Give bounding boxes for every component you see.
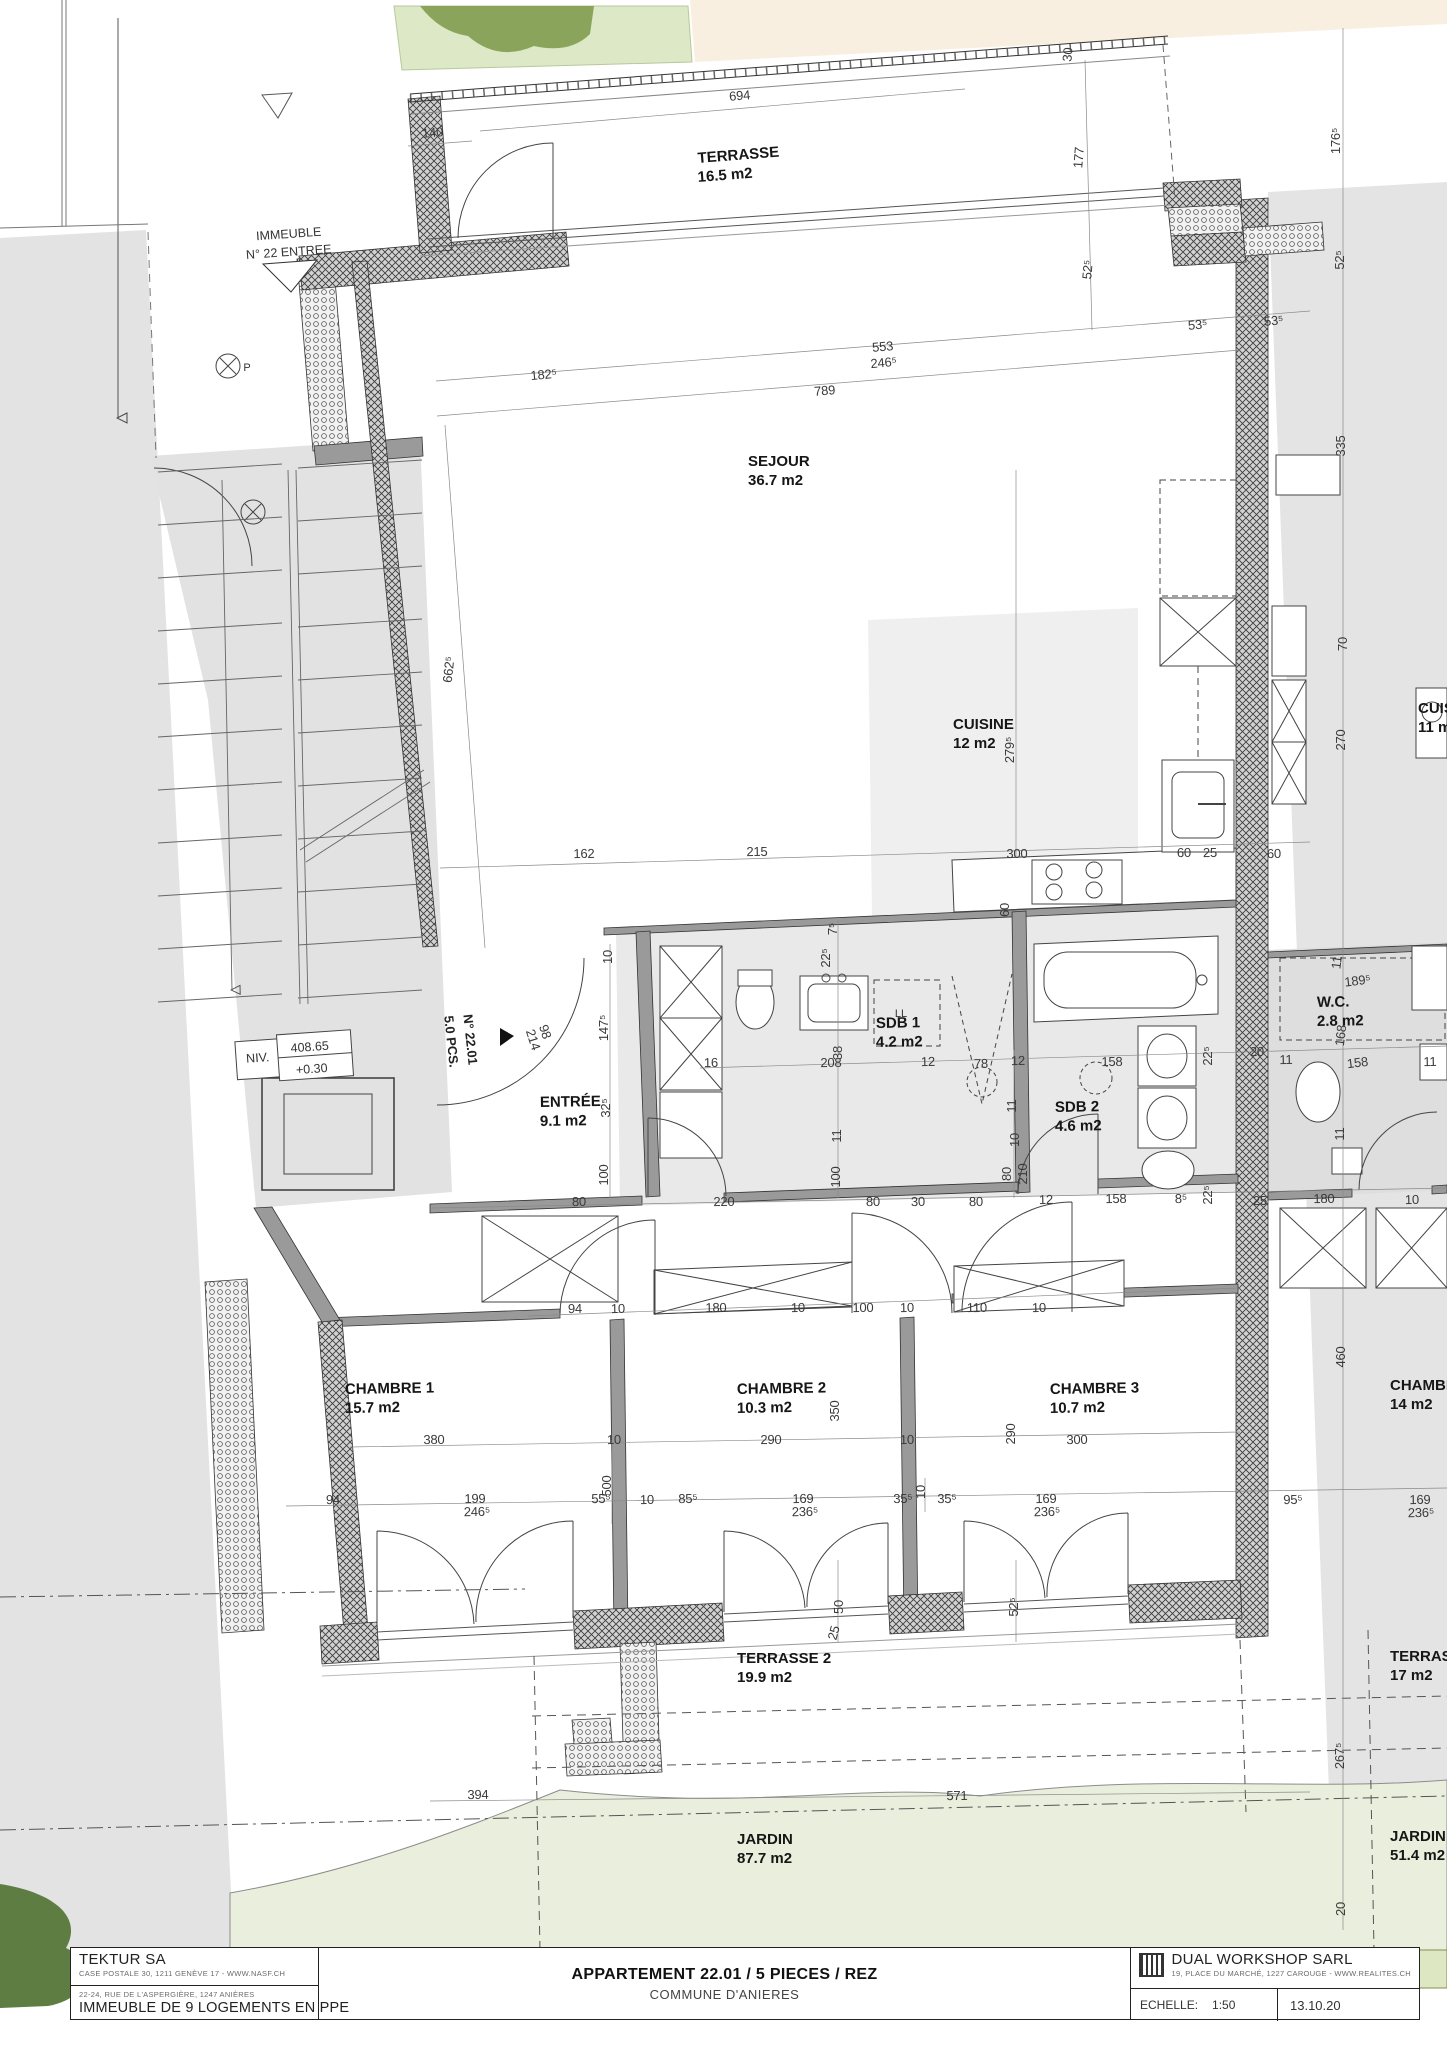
office-name: DUAL WORKSHOP SARL — [1171, 1951, 1411, 1968]
room-label: 16.5 m2 — [697, 165, 753, 186]
toilet — [1142, 1151, 1194, 1189]
dimension-label: 147⁵ — [596, 1015, 611, 1041]
interior-wall — [322, 1309, 560, 1327]
room-label: SEJOUR — [748, 453, 810, 470]
dimension-label: 571 — [946, 1788, 967, 1803]
garden-wall — [572, 1718, 612, 1744]
room-label: 2.8 m2 — [1317, 1012, 1364, 1030]
facade-pier — [320, 1622, 379, 1664]
room-label: TERRASSE 2 — [737, 1650, 831, 1667]
door-swing — [1047, 1513, 1128, 1597]
dimension-label: 22⁵ — [818, 948, 833, 967]
room-label: 19.9 m2 — [737, 1669, 792, 1686]
dimension-label: 694 — [728, 87, 750, 104]
dimension-label: 52⁵ — [1332, 250, 1347, 269]
dimension-label: 110 — [967, 1300, 987, 1315]
room-label: TERRASSE — [697, 144, 780, 167]
interior-wall — [900, 1317, 918, 1627]
plan-note: +0.30 — [295, 1061, 328, 1077]
dimension-label: 10 — [791, 1300, 805, 1315]
plan-note: N° 22.01 — [460, 1014, 480, 1066]
insulated-wall — [1168, 204, 1243, 236]
room-label: 36.7 m2 — [748, 472, 803, 489]
dimension-label: 180 — [1313, 1191, 1334, 1206]
scale-cell: ECHELLE: 1:50 — [1131, 1989, 1278, 2021]
toilet — [1296, 1062, 1340, 1122]
dimension-label: 100 — [828, 1166, 843, 1187]
dimension-label: 12 — [921, 1054, 935, 1069]
dimension-label: 215 — [746, 844, 767, 859]
dimension-label: 12 — [1039, 1192, 1053, 1207]
dimension-label: 80 — [969, 1194, 983, 1209]
door-swing — [458, 143, 553, 238]
project-address: 22-24, RUE DE L'ASPERGIÈRE, 1247 ANIÈRES — [79, 1990, 310, 1999]
dimension-label: 11 — [1279, 1052, 1292, 1067]
dimension-label: 7⁵ — [825, 923, 840, 935]
neighbor-wall — [1432, 1185, 1447, 1194]
dimension-label: 100 — [596, 1164, 611, 1185]
room-label: CHAMBRE 1 — [345, 1379, 434, 1398]
date-value: 13.10.20 — [1290, 1998, 1341, 2013]
dimension-label: 10 — [1405, 1192, 1419, 1207]
interior-wall — [610, 1319, 628, 1631]
plan-note: 408.65 — [290, 1039, 329, 1056]
dimension-label: 350 — [827, 1400, 842, 1421]
dimension-label: 8⁵ — [1175, 1191, 1187, 1206]
door-swing — [724, 1531, 805, 1612]
room-label: CHAMBRE — [1390, 1377, 1447, 1394]
garden-lawn — [230, 1780, 1447, 1950]
room-label: CUISINE — [1418, 700, 1447, 717]
door-swing — [437, 958, 584, 1105]
dimension-label: 60 — [1177, 845, 1191, 860]
dimension-label: 789 — [813, 382, 835, 399]
dimension-label: 279⁵ — [1002, 737, 1017, 763]
dimension-label: 236⁵ — [1034, 1504, 1061, 1519]
dimension-label: 158 — [1346, 1054, 1369, 1071]
scale-value: 1:50 — [1212, 1998, 1235, 2012]
dimension-label: 10 — [900, 1432, 914, 1447]
dimension-label: 22⁵ — [1200, 1185, 1215, 1204]
sheet-subtitle: COMMUNE D'ANIERES — [650, 1987, 800, 2002]
room-label: TERRASSE — [1390, 1648, 1447, 1665]
dimension-label: 78 — [974, 1056, 988, 1071]
room-label: CHAMBRE 2 — [737, 1379, 826, 1398]
dimension-label: 220 — [713, 1194, 734, 1209]
dimension-label: 10 — [607, 1432, 621, 1447]
dimension-label: 10 — [1007, 1133, 1022, 1147]
plan-background — [0, 0, 1447, 2008]
dimension-label: 10 — [640, 1492, 654, 1507]
dimension-label: 11 — [1332, 1127, 1347, 1140]
dimension-label: 25 — [1203, 845, 1217, 860]
floor-plan-sheet: 694140177176⁵3052⁵52⁵53⁵53⁵182⁵553246⁵78… — [0, 0, 1447, 2048]
dimension-label: 52⁵ — [1006, 1597, 1021, 1616]
dimension-label: 53⁵ — [1263, 312, 1283, 329]
dimension-label: 189⁵ — [1343, 971, 1371, 989]
dual-workshop-logo — [1139, 1953, 1164, 1977]
office-address: 19, PLACE DU MARCHÉ, 1227 CAROUGE - WWW.… — [1171, 1969, 1411, 1978]
dimension-label: 22⁵ — [1200, 1046, 1215, 1065]
scale-label: ECHELLE: — [1140, 1998, 1198, 2012]
dimension-label: 35⁵ — [937, 1491, 957, 1506]
plan-note: LL — [895, 1008, 907, 1020]
dimension-label: 60 — [997, 903, 1012, 917]
door-swing — [964, 1521, 1045, 1602]
room-label: SDB 2 — [1055, 1098, 1099, 1116]
dimension-label: 246⁵ — [464, 1504, 491, 1519]
dimension-label: 11 — [1328, 955, 1344, 970]
dimension-label: 60 — [1267, 846, 1281, 861]
interior-wall — [254, 1207, 340, 1322]
plan-note: P — [243, 362, 250, 374]
room-label: 51.4 m2 — [1390, 1847, 1445, 1864]
dimension-label: 11 — [1004, 1099, 1019, 1112]
dimension-label: 53⁵ — [1187, 316, 1207, 333]
dimension-label: 100 — [852, 1300, 873, 1315]
facade-pier — [1128, 1580, 1242, 1623]
door-swing — [852, 1213, 952, 1313]
dimension-label: 380 — [423, 1432, 444, 1447]
dimension-label: 270 — [1333, 729, 1348, 750]
dimension-label: 10 — [913, 1485, 928, 1499]
dimension-label: 30 — [911, 1194, 925, 1209]
dimension-label: 300 — [1006, 846, 1027, 861]
dimension-label: 25 — [825, 1624, 843, 1641]
dimension-label: 16 — [704, 1055, 718, 1070]
dimension-label: 158 — [1105, 1191, 1126, 1206]
title-block-sheet: APPARTEMENT 22.01 / 5 PIECES / REZ COMMU… — [319, 1948, 1131, 2019]
room-label: 15.7 m2 — [345, 1399, 400, 1417]
dimension-label: 335 — [1333, 435, 1348, 456]
dimension-label: 267⁵ — [1332, 1743, 1347, 1769]
plan-note: NIV. — [246, 1050, 270, 1066]
date-cell: 13.10.20 — [1278, 1989, 1419, 2021]
room-label: 12 m2 — [953, 735, 996, 752]
project-name: IMMEUBLE DE 9 LOGEMENTS EN PPE — [79, 2000, 310, 2016]
room-label: CUISINE — [953, 716, 1014, 733]
title-block-architect: TEKTUR SA CASE POSTALE 30, 1211 GENÈVE 1… — [71, 1948, 319, 2019]
dimension-label: 182⁵ — [530, 366, 557, 383]
room-label: 4.2 m2 — [876, 1033, 923, 1051]
room-label: 10.7 m2 — [1050, 1399, 1105, 1417]
exterior-wall — [1171, 232, 1246, 266]
entry-marker — [500, 1028, 514, 1046]
dimension-label: 10 — [600, 950, 615, 964]
floor-plan-canvas: 694140177176⁵3052⁵52⁵53⁵53⁵182⁵553246⁵78… — [0, 0, 1447, 2048]
stair-hall-floor — [150, 438, 452, 1208]
room-label: 87.7 m2 — [737, 1850, 792, 1867]
dimension-label: 12 — [1011, 1053, 1025, 1068]
room-label: JARDIN — [1390, 1828, 1446, 1845]
room-label: 9.1 m2 — [540, 1112, 587, 1130]
dimension-label: 460 — [1333, 1346, 1348, 1367]
dimension-label: 290 — [760, 1432, 781, 1447]
room-label: 10.3 m2 — [737, 1399, 792, 1417]
dimension-label: 55⁵ — [591, 1491, 611, 1506]
dimension-label: 236⁵ — [1408, 1505, 1435, 1520]
room-label: ENTRÉE — [540, 1093, 601, 1111]
dimension-label: 246⁵ — [870, 354, 897, 371]
dimension-label: 553 — [871, 338, 893, 355]
room-label: 4.6 m2 — [1055, 1117, 1102, 1135]
plan-note: IMMEUBLE — [256, 225, 322, 244]
room-label: JARDIN — [737, 1831, 793, 1848]
facade-pier — [888, 1592, 964, 1634]
dimension-label: 20 — [1250, 1044, 1264, 1059]
title-block-office: DUAL WORKSHOP SARL 19, PLACE DU MARCHÉ, … — [1131, 1948, 1419, 2019]
dimension-label: 162 — [573, 846, 594, 861]
dimension-label: 25 — [1253, 1193, 1267, 1208]
dimension-label: 70 — [1335, 637, 1350, 651]
door-swing — [377, 1531, 474, 1628]
sheet-title: APPARTEMENT 22.01 / 5 PIECES / REZ — [572, 1966, 878, 1984]
architect-name: TEKTUR SA — [79, 1951, 310, 1968]
dimension-label: 180 — [705, 1300, 726, 1315]
dimension-label: 80 — [866, 1194, 880, 1209]
dimension-label: 176⁵ — [1328, 128, 1343, 154]
exterior-wall — [318, 1320, 368, 1632]
dimension-label: 10 — [900, 1300, 914, 1315]
title-block: TEKTUR SA CASE POSTALE 30, 1211 GENÈVE 1… — [70, 1947, 1420, 2020]
dimension-label: 290 — [1003, 1423, 1018, 1444]
dimension-label: 85⁵ — [678, 1491, 698, 1506]
dimension-label: 80 — [572, 1194, 586, 1209]
dimension-label: 158 — [1101, 1054, 1122, 1069]
bathtub — [1034, 936, 1218, 1022]
dimension-label: 95⁵ — [1283, 1492, 1303, 1507]
dimension-label: 20 — [1333, 1902, 1348, 1916]
terrace-end-wall — [408, 96, 452, 253]
dimension-label: 30 — [1059, 47, 1075, 62]
dimension-label: 662⁵ — [440, 656, 458, 684]
dimension-label: 177 — [1070, 146, 1087, 168]
room-label: CHAMBRE 3 — [1050, 1379, 1139, 1398]
dimension-label: 94 — [568, 1301, 582, 1316]
dimension-label: 94 — [326, 1492, 340, 1507]
room-label: 11 m2 — [1418, 719, 1447, 736]
door-swing — [807, 1523, 888, 1607]
party-wall — [1236, 198, 1268, 1638]
dimension-label: 10 — [1032, 1300, 1046, 1315]
dimension-label: 210 — [1015, 1163, 1030, 1184]
dimension-label: 38 — [830, 1046, 845, 1060]
dimension-label: 236⁵ — [792, 1504, 819, 1519]
room-label: W.C. — [1317, 993, 1350, 1011]
dimension-label: 35⁵ — [893, 1491, 913, 1506]
dimension-label: 50 — [831, 1600, 846, 1614]
dimension-label: 80 — [999, 1167, 1014, 1181]
dimension-label: 394 — [467, 1787, 488, 1802]
room-label: 14 m2 — [1390, 1396, 1433, 1413]
dimension-label: 300 — [1066, 1432, 1087, 1447]
dimension-label: 11 — [829, 1129, 844, 1142]
architect-address: CASE POSTALE 30, 1211 GENÈVE 17 - WWW.NA… — [79, 1969, 310, 1978]
dimension-label: 140 — [421, 124, 443, 141]
garden-wall — [565, 1740, 662, 1776]
dimension-label: 10 — [611, 1301, 625, 1316]
room-label: 17 m2 — [1390, 1667, 1433, 1684]
insulated-wall — [1243, 222, 1324, 256]
door-swing — [476, 1521, 573, 1622]
dimension-label: 11 — [1423, 1054, 1436, 1069]
dimension-label: 52⁵ — [1079, 259, 1096, 279]
